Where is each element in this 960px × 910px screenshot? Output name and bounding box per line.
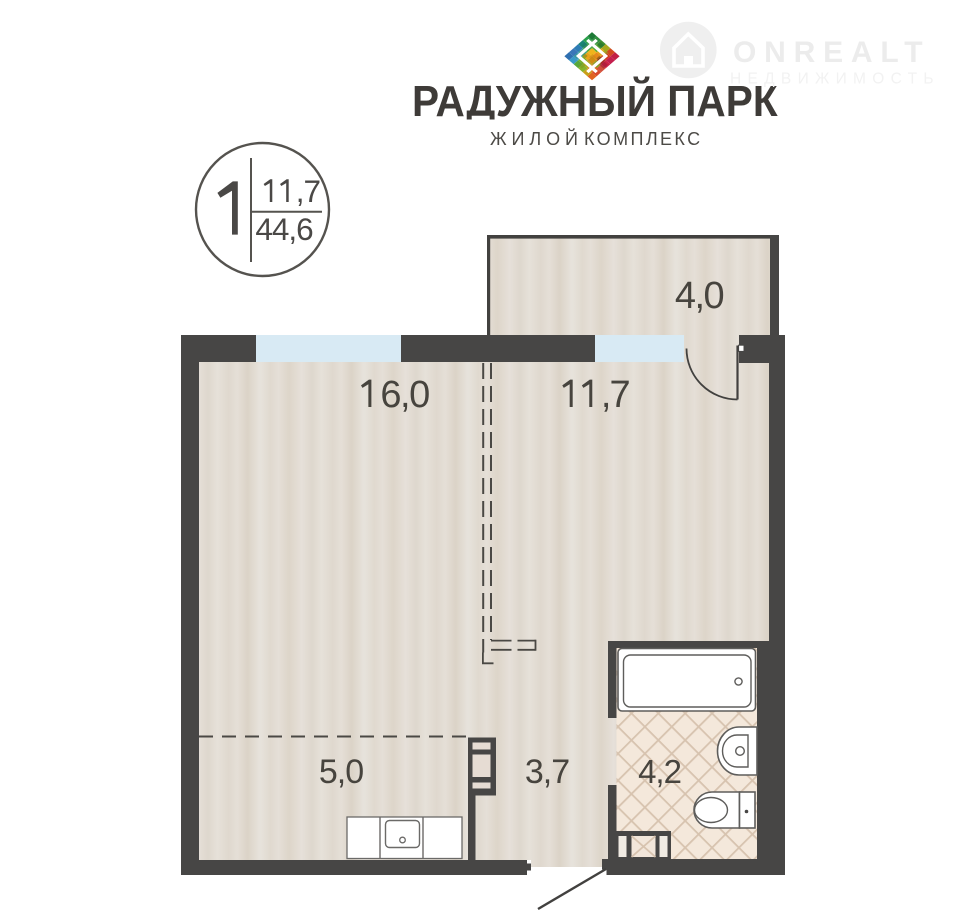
svg-text:6,0: 6,0 xyxy=(380,374,429,416)
svg-text:4,0: 4,0 xyxy=(675,275,724,317)
svg-text:3,7: 3,7 xyxy=(525,753,569,791)
svg-text:ЖИЛОЙ: ЖИЛОЙ xyxy=(490,128,583,149)
svg-text:4,2: 4,2 xyxy=(638,753,681,790)
svg-text:,7: ,7 xyxy=(601,374,630,416)
svg-text:НЕДВИЖИМОСТЬ: НЕДВИЖИМОСТЬ xyxy=(730,71,940,88)
svg-text:КОМПЛЕКС: КОМПЛЕКС xyxy=(584,129,703,149)
svg-text:5,0: 5,0 xyxy=(319,753,363,791)
svg-text:44,6: 44,6 xyxy=(255,211,313,247)
svg-text:,7: ,7 xyxy=(296,173,320,209)
svg-text:ONREALT: ONREALT xyxy=(733,36,930,69)
